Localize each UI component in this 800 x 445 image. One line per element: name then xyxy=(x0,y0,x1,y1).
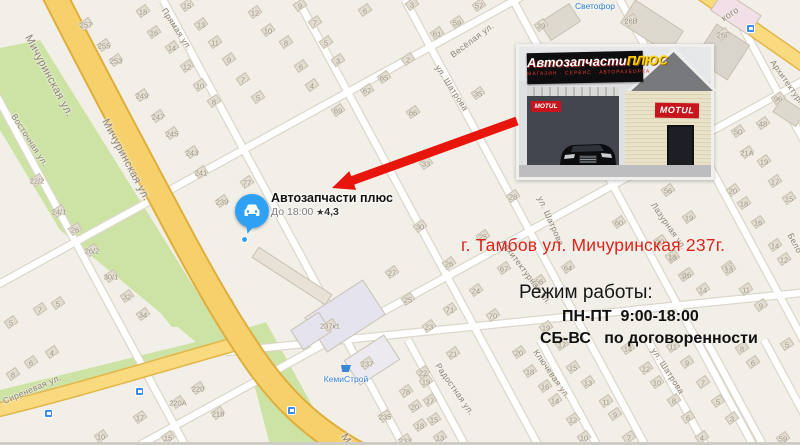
house-number-label: 7 xyxy=(38,306,42,315)
house-number-label: 7 xyxy=(241,76,245,85)
house-number-label: 10 xyxy=(264,27,272,36)
house-number-label: 28 xyxy=(509,193,517,202)
storefront-photo: MOTUL MOTUL АвтозапчастиПЛЮС МАГАЗИН · С… xyxy=(516,44,714,180)
house-number-label: 235 xyxy=(379,413,392,422)
house-number-label: 67 xyxy=(363,87,371,96)
house-number-label: 14 xyxy=(699,286,707,295)
house-number-label: 21 xyxy=(449,350,457,359)
house-number-label: 20 xyxy=(729,187,737,196)
house-number-label: 16 xyxy=(754,219,762,228)
house-number-label: 16 xyxy=(150,29,158,38)
house-number-label: 241 xyxy=(195,169,208,178)
sign-title: АвтозапчастиПЛЮС xyxy=(527,53,643,70)
photo-billboard: MOTUL xyxy=(527,87,619,171)
house-number-label: 17 xyxy=(426,397,434,406)
house-number-label: 11 xyxy=(211,39,219,48)
house-number-label: 220А xyxy=(169,399,187,408)
house-number-label: 48 xyxy=(759,120,767,129)
house-number-label: 13 xyxy=(197,21,205,30)
house-number-label: 57 xyxy=(475,2,483,11)
house-number-label: 253 xyxy=(110,57,123,66)
house-number-label: 6 xyxy=(29,359,33,368)
house-number-label: 9 xyxy=(298,2,302,11)
house-number-label: 6 xyxy=(751,359,755,368)
house-number-label: 22/2 xyxy=(30,177,45,186)
house-number-label: 70 xyxy=(489,312,497,321)
marker-rating: 4,3 xyxy=(324,206,339,218)
house-number-label: 15 xyxy=(430,416,438,425)
house-number-label: 26Г xyxy=(717,31,729,40)
transit-stop-icon[interactable] xyxy=(44,409,53,418)
house-number-label: 9 xyxy=(227,56,231,65)
house-number-label: 243 xyxy=(186,149,199,158)
billboard-header xyxy=(527,87,619,96)
house-number-label: 50 xyxy=(734,128,742,137)
house-number-label: 245 xyxy=(166,130,179,139)
house-number-label: 30/1 xyxy=(104,273,119,282)
house-number-label: 78 xyxy=(402,388,410,397)
house-number-label: 12 xyxy=(251,9,259,18)
house-number-label: 249 xyxy=(136,92,149,101)
house-number-label: 5 xyxy=(785,341,789,350)
house-number-label: 9 xyxy=(613,411,617,420)
pin-ground-dot xyxy=(241,236,248,243)
house-number-label: 25 xyxy=(404,296,412,305)
house-number-label: 19 xyxy=(760,158,768,167)
house-number-label: 10 xyxy=(97,433,105,442)
house-number-label: 237к1 xyxy=(320,322,340,331)
house-number-label: 5 xyxy=(9,319,13,328)
house-number-label: 24/1 xyxy=(52,208,67,217)
house-number-label: 61 xyxy=(433,30,441,39)
house-number-label: 13 xyxy=(725,266,733,275)
house-number-label: 3 xyxy=(410,1,414,10)
house-number-label: 56 xyxy=(664,187,672,196)
house-number-label: 4 xyxy=(50,349,54,358)
house-number-label: 17 xyxy=(136,414,144,423)
house-number-label: 23 xyxy=(425,323,433,332)
house-number-label: 15 xyxy=(569,364,577,373)
house-number-label: 26 xyxy=(445,260,453,269)
street-label: Бело xyxy=(786,231,800,255)
house-number-label: 9 xyxy=(759,302,763,311)
map-pin-autoparts[interactable]: Автозапчасти плюс До 18:00 ★4,3 xyxy=(235,194,269,228)
house-number-label: 5 xyxy=(324,39,328,48)
house-number-label: 3 xyxy=(730,415,734,424)
house-number-label: 27 xyxy=(388,269,396,278)
photo-building-wall: MOTUL xyxy=(625,91,711,167)
house-number-label: 71 xyxy=(446,306,454,315)
street-label: Восточная ул. xyxy=(9,112,50,168)
house-number-label: 8 xyxy=(284,39,288,48)
house-number-label: 9 xyxy=(685,359,689,368)
poi-label[interactable]: Светофор xyxy=(575,1,615,11)
marker-hours: До 18:00 xyxy=(271,206,313,218)
street-label: Мичуринская ул. xyxy=(22,33,75,119)
house-number-label: 60 xyxy=(615,219,623,228)
house-number-label: 12 xyxy=(780,256,788,265)
building xyxy=(252,247,333,306)
house-number-label: 8 xyxy=(212,98,216,107)
house-number-label: 11 xyxy=(742,286,750,295)
house-number-label: 96 xyxy=(774,95,782,104)
house-number-label: 12 xyxy=(183,63,191,72)
house-number-label: 3 xyxy=(336,57,340,66)
house-number-label: 77 xyxy=(243,179,251,188)
schedule-weekend: СБ-ВС по договоренности xyxy=(540,330,758,348)
house-number-label: 247 xyxy=(152,113,165,122)
house-number-label: 6 xyxy=(363,7,367,16)
address-text: г. Тамбов ул. Мичуринская 237г. xyxy=(461,235,725,256)
house-number-label: 5 xyxy=(56,300,60,309)
house-number-label: 218 xyxy=(212,410,225,419)
house-number-label: 19 xyxy=(422,378,430,387)
house-number-label: 13 xyxy=(584,379,592,388)
house-number-label: 6 xyxy=(686,414,690,423)
house-number-label: 2 xyxy=(406,56,410,65)
schedule-weekdays: ПН-ПТ 9:00-18:00 xyxy=(562,308,699,326)
house-number-label: 69 xyxy=(334,107,342,116)
house-number-label: 34 xyxy=(139,311,147,320)
house-number-label: 64 xyxy=(564,264,572,273)
street-label: Мичуринская ул. xyxy=(99,117,152,203)
marker-title[interactable]: Автозапчасти плюс xyxy=(271,191,393,205)
house-number-label: 39 xyxy=(537,22,545,31)
photo-ground xyxy=(519,165,711,177)
poi-label[interactable]: КемиСтрой xyxy=(324,374,369,384)
house-number-label: 10 xyxy=(196,82,204,91)
house-number-label: 20 xyxy=(515,349,523,358)
house-number-label: 5 xyxy=(256,94,260,103)
street-label: Ключевая ул. xyxy=(531,348,572,401)
house-number-label: 255 xyxy=(98,42,111,51)
house-number-label: 19 xyxy=(685,214,693,223)
house-number-label: 66 xyxy=(409,109,417,118)
house-number-label: 15 xyxy=(785,195,793,204)
house-number-label: 24 xyxy=(472,287,480,296)
store-signboard: АвтозапчастиПЛЮС МАГАЗИН · СЕРВИС · АВТО… xyxy=(527,51,644,84)
house-number-label: 14 xyxy=(771,242,779,251)
house-number-label: 59 xyxy=(453,19,461,28)
house-number-label: 14 xyxy=(551,397,559,406)
house-number-label: 7 xyxy=(701,379,705,388)
street-label: Радостная ул. xyxy=(433,361,476,417)
marker-subtitle: До 18:00 ★4,3 xyxy=(271,206,393,218)
house-number-label: 239 xyxy=(216,198,229,207)
house-number-label: 16 xyxy=(683,271,691,280)
motul-logo: MOTUL xyxy=(531,101,561,112)
house-number-label: 26/2 xyxy=(85,247,100,256)
house-number-label: 15 xyxy=(183,2,191,11)
house-number-label: 35 xyxy=(474,90,482,99)
transit-stop-icon[interactable] xyxy=(135,387,144,396)
house-number-label: 16 xyxy=(541,383,549,392)
house-number-label: 4 xyxy=(310,82,314,91)
transit-stop-icon[interactable] xyxy=(746,24,755,33)
street-label: ул. Шатрова xyxy=(433,63,470,113)
house-number-label: 257 xyxy=(80,21,93,30)
house-number-label: 20 xyxy=(411,403,419,412)
house-number-label: 237 xyxy=(361,360,374,369)
house-number-label: 8 xyxy=(11,371,15,380)
house-number-label: 17 xyxy=(771,178,779,187)
sign-title-accent: ПЛЮС xyxy=(626,52,668,68)
house-number-label: 21А xyxy=(740,149,753,158)
house-number-label: 30 xyxy=(416,223,424,232)
house-number-label: 26 xyxy=(71,226,79,235)
motul-sign: MOTUL xyxy=(655,103,699,119)
house-number-label: 18 xyxy=(740,200,748,209)
house-number-label: 12 xyxy=(642,365,650,374)
house-number-label: 22 xyxy=(419,369,427,378)
car-icon xyxy=(242,203,262,219)
house-number-label: 32 xyxy=(123,293,131,302)
sign-subtitle: МАГАЗИН · СЕРВИС · АВТОРАЗБОРКА xyxy=(527,69,643,77)
house-number-label: 33 xyxy=(422,160,430,169)
marker-label[interactable]: Автозапчасти плюс До 18:00 ★4,3 xyxy=(271,191,393,218)
house-number-label: 14 xyxy=(168,44,176,53)
house-number-label: 6 xyxy=(299,63,303,72)
house-number-label: 11 xyxy=(602,398,610,407)
house-number-label: 12 xyxy=(569,416,577,425)
house-number-label: 18 xyxy=(139,8,147,17)
house-number-label: 26В xyxy=(624,17,637,26)
house-number-label: 67 xyxy=(500,265,508,274)
house-number-label: 7 xyxy=(313,19,317,28)
house-number-label: 18 xyxy=(526,368,534,377)
house-number-label: 8 xyxy=(672,397,676,406)
house-number-label: 18 xyxy=(416,422,424,431)
house-number-label: 220 xyxy=(192,385,205,394)
transit-stop-icon[interactable] xyxy=(287,406,296,415)
house-number-label: 10 xyxy=(653,379,661,388)
schedule-title: Режим работы: xyxy=(519,282,653,304)
map-screenshot: 25725525324924724524324123922/224/12626/… xyxy=(0,0,800,445)
house-number-label: 5 xyxy=(716,398,720,407)
house-number-label: 65 xyxy=(380,74,388,83)
